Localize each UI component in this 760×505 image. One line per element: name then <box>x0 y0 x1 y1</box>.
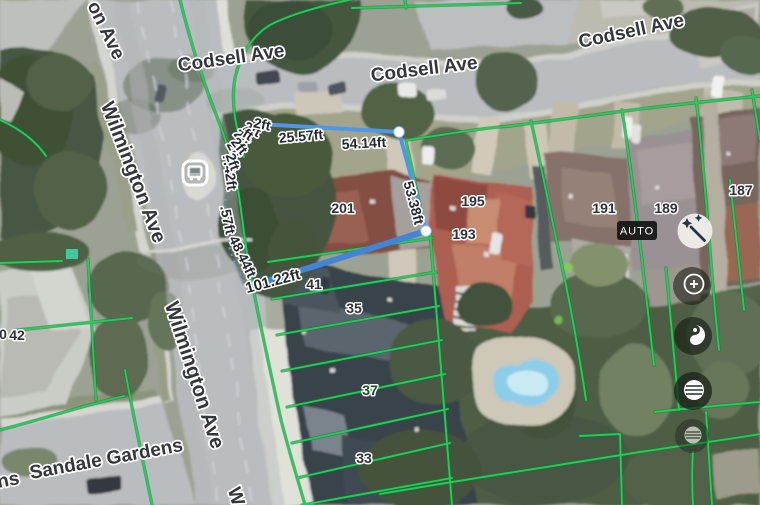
svg-text:35: 35 <box>346 300 362 316</box>
svg-text:187: 187 <box>729 182 753 198</box>
svg-text:201: 201 <box>331 200 355 216</box>
svg-text:37: 37 <box>362 382 378 398</box>
svg-text:41: 41 <box>306 276 322 292</box>
svg-text:42: 42 <box>9 327 25 343</box>
svg-text:54.14ft: 54.14ft <box>341 134 386 152</box>
svg-text:195: 195 <box>461 193 485 209</box>
svg-text:0: 0 <box>0 326 7 342</box>
svg-text:AUTO: AUTO <box>620 226 654 238</box>
svg-text:193: 193 <box>452 226 476 242</box>
svg-text:ns: ns <box>0 468 21 493</box>
svg-text:189: 189 <box>654 200 678 216</box>
svg-text:33: 33 <box>356 450 372 466</box>
svg-text:191: 191 <box>592 200 616 216</box>
